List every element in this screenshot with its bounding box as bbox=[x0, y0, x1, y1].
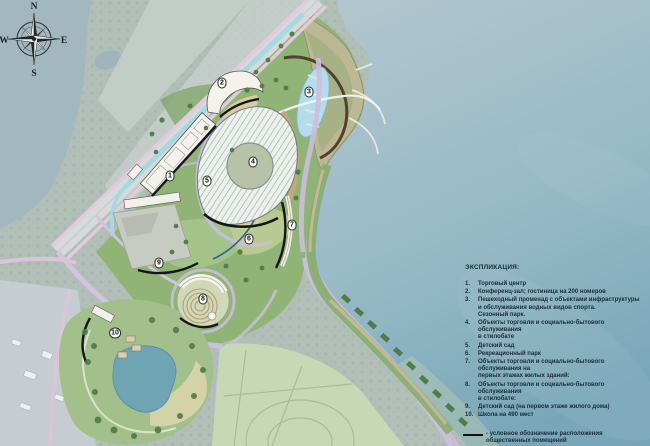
legend-item-number: 7. bbox=[463, 359, 478, 381]
legend-item: 7. Объекты торговли и социально-бытового… bbox=[463, 359, 649, 381]
legend-item-number: 9. bbox=[463, 404, 478, 411]
legend-item: 4. Объекты торговли и социально-бытового… bbox=[463, 320, 649, 342]
legend-item-number: 3. bbox=[463, 297, 478, 319]
legend-item-number: 1. bbox=[463, 281, 478, 288]
map-marker-number: 1 bbox=[168, 173, 172, 180]
compass-letter-n: N bbox=[31, 2, 38, 12]
map-marker: 2 bbox=[218, 78, 227, 89]
compass-letter-s: S bbox=[31, 69, 36, 78]
legend-item: 1. Торговый центр bbox=[463, 281, 649, 288]
legend-item-number: 4. bbox=[463, 320, 478, 342]
legend-item-text: Объекты торговли и социально-бытового об… bbox=[478, 320, 649, 342]
legend-item-number: 8. bbox=[463, 382, 478, 404]
map-marker: 10 bbox=[109, 328, 121, 339]
map-marker-number: 5 bbox=[205, 178, 209, 185]
map-marker: 5 bbox=[203, 176, 212, 187]
map-marker: 3 bbox=[305, 87, 314, 98]
map-marker-number: 10 bbox=[111, 330, 119, 337]
map-marker-number: 3 bbox=[307, 89, 311, 96]
compass-letter-w: W bbox=[0, 36, 9, 46]
legend-item: 2. Конференц-зал; гостиница на 200 номер… bbox=[463, 289, 649, 296]
legend-item-text: Объекты торговли и социально-бытового об… bbox=[478, 382, 649, 404]
map-marker: 8 bbox=[199, 294, 208, 305]
legend-item: 6. Рекреационный парк bbox=[463, 351, 649, 358]
legend-footnote: - условное обозначение расположения обще… bbox=[463, 431, 649, 445]
legend-item-text: Детский сад bbox=[478, 343, 649, 350]
legend-item-number: 10. bbox=[463, 412, 478, 419]
map-marker-number: 2 bbox=[220, 80, 224, 87]
public-premises-line-swatch bbox=[463, 434, 483, 436]
legend-item-text: Торговый центр bbox=[478, 281, 649, 288]
compass-rose: N S W E bbox=[0, 0, 68, 78]
legend-item: 8. Объекты торговли и социально-бытового… bbox=[463, 382, 649, 404]
legend-item-number: 5. bbox=[463, 343, 478, 350]
map-marker-number: 7 bbox=[290, 222, 294, 229]
masterplan-canvas: 1 2 3 4 5 6 7 8 9 10 ЭКСПЛИКАЦИЯ: 1. Тор… bbox=[0, 0, 650, 446]
legend-item: 10. Школа на 490 мест bbox=[463, 412, 649, 419]
legend-footnote-text: - условное обозначение расположения обще… bbox=[486, 431, 603, 445]
legend-item: 5. Детский сад bbox=[463, 343, 649, 350]
legend-item-text: Школа на 490 мест bbox=[478, 412, 649, 419]
legend-item-number: 2. bbox=[463, 289, 478, 296]
legend: ЭКСПЛИКАЦИЯ: 1. Торговый центр 2. Конфер… bbox=[463, 264, 649, 445]
map-marker: 4 bbox=[249, 157, 258, 168]
legend-item-text: Объекты торговли и социально-бытового об… bbox=[478, 359, 649, 381]
legend-title: ЭКСПЛИКАЦИЯ: bbox=[465, 264, 649, 271]
legend-item: 9. Детский сад (на первом этаже жилого д… bbox=[463, 404, 649, 411]
map-marker: 9 bbox=[155, 258, 164, 269]
map-marker-number: 8 bbox=[201, 296, 205, 303]
legend-item: 3. Пешеходный променад с объектами инфра… bbox=[463, 297, 649, 319]
map-marker-number: 6 bbox=[247, 236, 251, 243]
map-marker-number: 4 bbox=[251, 159, 255, 166]
legend-item-text: Детский сад (на первом этаже жилого дома… bbox=[478, 404, 649, 411]
legend-item-text: Конференц-зал; гостиница на 200 номеров bbox=[478, 289, 649, 296]
legend-list: 1. Торговый центр 2. Конференц-зал; гост… bbox=[463, 281, 649, 420]
map-marker: 6 bbox=[245, 234, 254, 245]
map-marker: 7 bbox=[288, 220, 297, 231]
legend-item-text: Рекреационный парк bbox=[478, 351, 649, 358]
map-marker-number: 9 bbox=[157, 260, 161, 267]
legend-item-number: 6. bbox=[463, 351, 478, 358]
compass-letter-e: E bbox=[61, 36, 67, 46]
legend-item-text: Пешеходный променад с объектами инфрастр… bbox=[478, 297, 649, 319]
map-marker: 1 bbox=[166, 171, 175, 182]
